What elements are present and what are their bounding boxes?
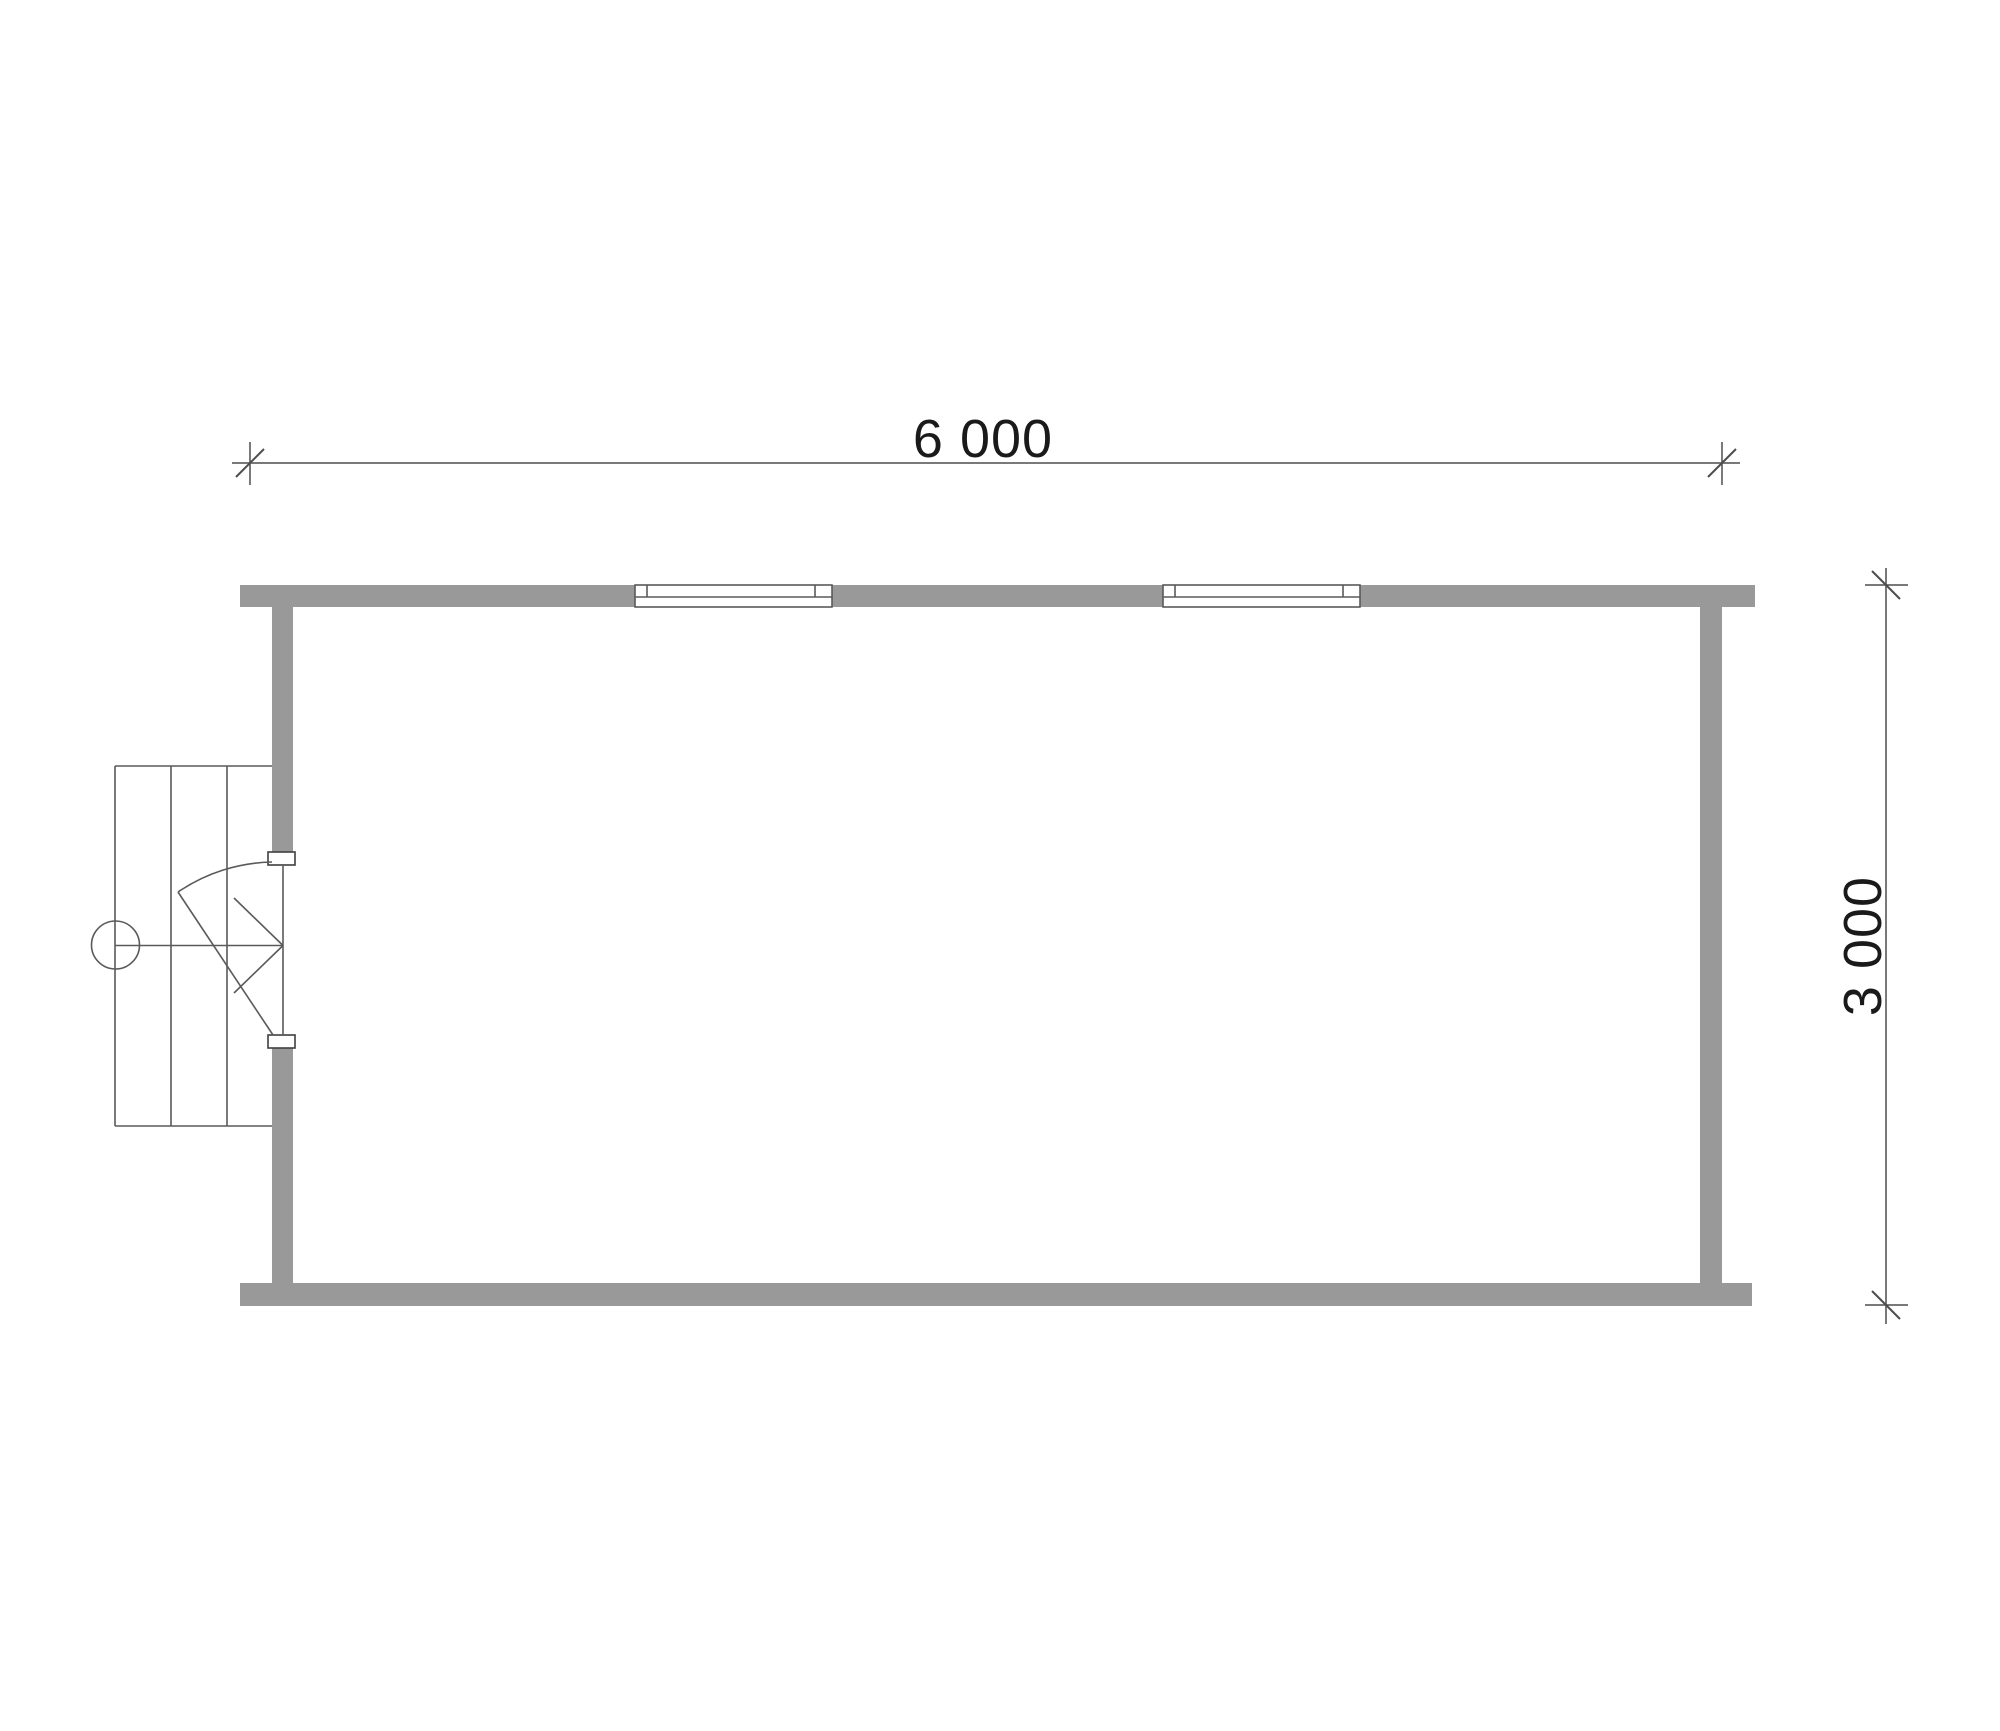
window-1 bbox=[635, 585, 832, 607]
wall-left-lower-segment bbox=[272, 1048, 293, 1283]
wall-bottom bbox=[240, 1283, 1752, 1306]
wall-top-left-segment bbox=[240, 585, 635, 607]
wall-left-upper-segment bbox=[272, 607, 293, 852]
wall-top-middle-segment bbox=[832, 585, 1163, 607]
door-jamb-top bbox=[268, 852, 295, 865]
window-2 bbox=[1163, 585, 1360, 607]
door-jamb-bottom bbox=[268, 1035, 295, 1048]
wall-right bbox=[1700, 607, 1722, 1283]
floor-plan-canvas: 6 000 3 000 bbox=[0, 0, 2000, 1731]
window-2-opening bbox=[1163, 585, 1360, 607]
dimension-height-label: 3 000 bbox=[1833, 876, 1893, 1016]
window-1-opening bbox=[635, 585, 832, 607]
dimension-width-label: 6 000 bbox=[913, 409, 1053, 469]
wall-top-right-segment bbox=[1360, 585, 1755, 607]
